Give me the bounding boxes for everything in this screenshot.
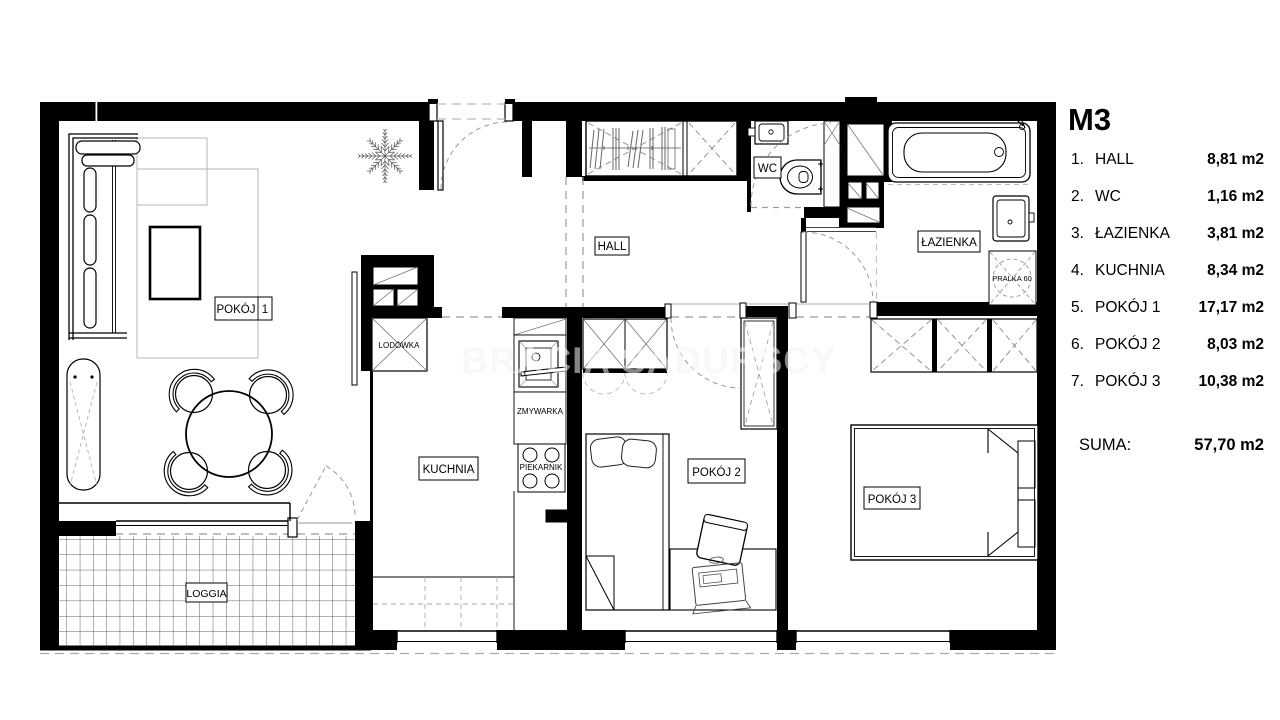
svg-text:POKÓJ 2: POKÓJ 2	[692, 466, 741, 479]
svg-text:1,16 m2: 1,16 m2	[1207, 188, 1264, 205]
svg-text:LODÓWKA: LODÓWKA	[379, 341, 421, 350]
svg-text:HALL: HALL	[1095, 151, 1134, 168]
svg-text:M3: M3	[1068, 102, 1111, 137]
svg-text:ZMYWARKA: ZMYWARKA	[517, 407, 564, 416]
svg-text:4.: 4.	[1071, 262, 1084, 279]
svg-text:17,17 m2: 17,17 m2	[1199, 299, 1265, 316]
svg-text:8,34 m2: 8,34 m2	[1207, 262, 1264, 279]
svg-text:KUCHNIA: KUCHNIA	[1095, 262, 1165, 279]
svg-text:POKÓJ 1: POKÓJ 1	[1095, 299, 1160, 316]
svg-text:10,38 m2: 10,38 m2	[1199, 373, 1265, 390]
svg-text:8,81 m2: 8,81 m2	[1207, 151, 1264, 168]
svg-text:ŁAZIENKA: ŁAZIENKA	[921, 237, 977, 249]
svg-text:POKÓJ 2: POKÓJ 2	[1095, 336, 1160, 353]
svg-text:7.: 7.	[1071, 373, 1084, 390]
svg-text:KUCHNIA: KUCHNIA	[423, 464, 475, 476]
svg-text:3,81 m2: 3,81 m2	[1207, 225, 1264, 242]
svg-text:HALL: HALL	[598, 241, 627, 253]
svg-text:5.: 5.	[1071, 299, 1084, 316]
svg-text:WC: WC	[758, 163, 777, 175]
svg-text:POKÓJ: POKÓJ	[217, 303, 256, 316]
svg-text:PIEKARNIK: PIEKARNIK	[520, 463, 563, 472]
svg-text:8,03 m2: 8,03 m2	[1207, 336, 1264, 353]
svg-text:PRALKA 60: PRALKA 60	[992, 274, 1032, 283]
svg-text:POKÓJ 3: POKÓJ 3	[1095, 373, 1160, 390]
svg-text:SUMA:: SUMA:	[1079, 436, 1131, 454]
svg-text:6.: 6.	[1071, 336, 1084, 353]
svg-text:1.: 1.	[1071, 151, 1084, 168]
svg-text:2.: 2.	[1071, 188, 1084, 205]
svg-text:57,70 m2: 57,70 m2	[1194, 436, 1264, 454]
svg-text:WC: WC	[1095, 188, 1121, 205]
svg-text:1: 1	[262, 304, 268, 316]
svg-text:POKÓJ 3: POKÓJ 3	[868, 493, 917, 506]
svg-text:BRACIA SADURSCY: BRACIA SADURSCY	[461, 340, 836, 381]
svg-text:LOGGIA: LOGGIA	[186, 588, 226, 600]
svg-text:3.: 3.	[1071, 225, 1084, 242]
svg-text:ŁAZIENKA: ŁAZIENKA	[1095, 225, 1171, 242]
